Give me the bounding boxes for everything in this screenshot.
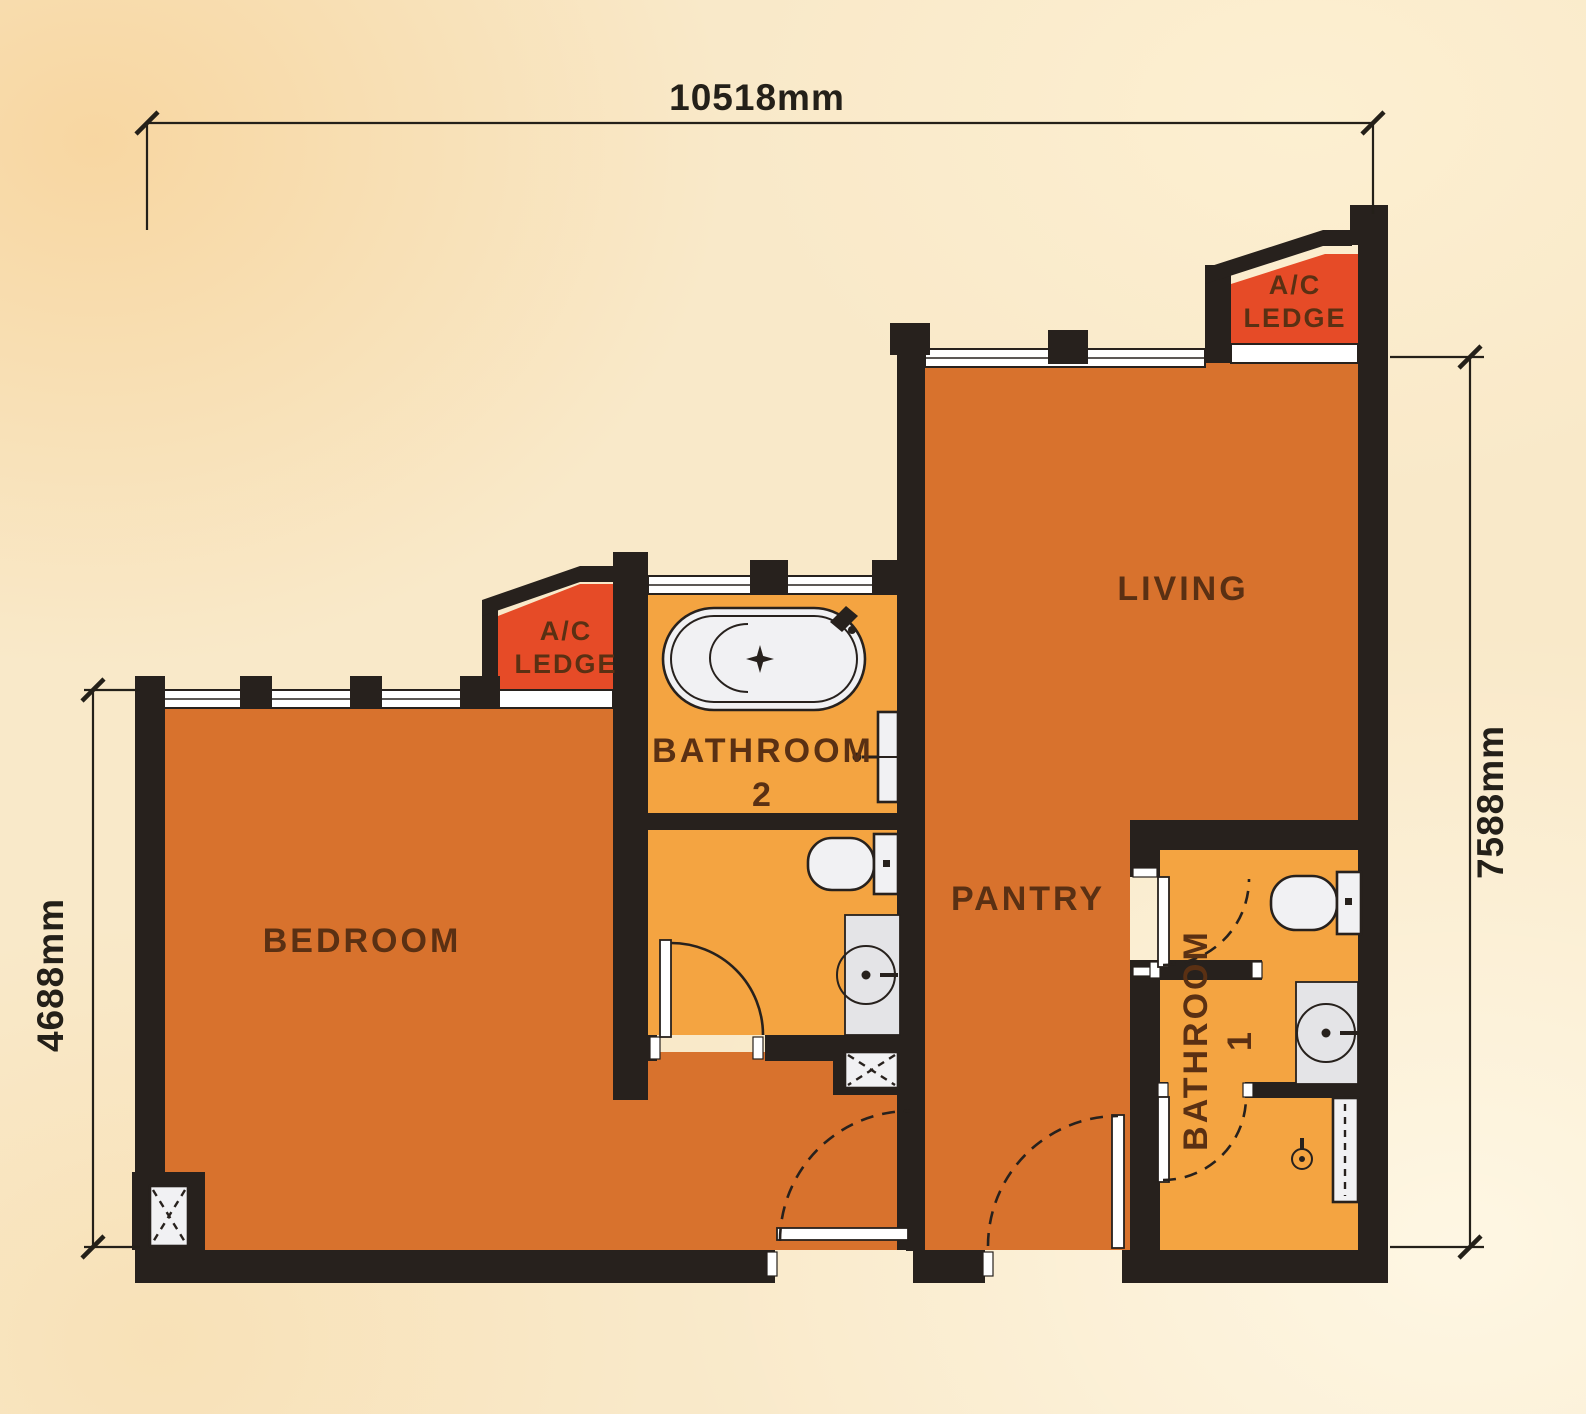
bathroom2-label: BATHROOM (652, 732, 874, 770)
wall-right-outer (1358, 212, 1388, 1283)
door-stop (650, 1037, 660, 1059)
living-label: LIVING (1117, 570, 1248, 608)
wall-bathroom1-left (1130, 967, 1160, 1250)
window-mullion (240, 676, 272, 708)
ac-ledge-left-label: A/C (540, 616, 593, 646)
sink-drain (1322, 1029, 1331, 1038)
bathtub-tap-icon (848, 626, 856, 634)
entry-door-leaf (1112, 1115, 1124, 1248)
door-leaf (660, 940, 671, 1037)
wall-bathroom2-partition (648, 813, 898, 830)
window-mullion (750, 560, 788, 595)
toilet-icon (808, 838, 874, 890)
wall-ac-ledge-left (482, 604, 498, 692)
bedroom-floor (165, 704, 613, 1250)
ac-ledge-left-window (498, 690, 613, 708)
dimension-top-label: 10518mm (669, 77, 845, 118)
door-stop (1158, 1083, 1168, 1097)
door-stop (767, 1252, 777, 1276)
door-stop (1133, 868, 1157, 877)
window-mullion (135, 676, 163, 708)
window-mullion (872, 560, 900, 595)
bathroom1-label: BATHROOM (1177, 929, 1215, 1151)
toilet-button (883, 860, 890, 867)
entry-door-leaf (777, 1228, 908, 1240)
bedroom-label: BEDROOM (263, 922, 462, 960)
wall-bathroom2-left (613, 552, 648, 1100)
door-stop (753, 1037, 763, 1059)
floor-plan-page: { "title": "Apartment Unit Floor Plan", … (0, 0, 1586, 1414)
door-stop (1243, 1083, 1253, 1097)
door-stop (1252, 962, 1262, 978)
ac-ledge-right-label: A/C (1269, 270, 1322, 300)
window-mullion (1048, 330, 1088, 364)
dimension-right-label: 7588mm (1470, 725, 1511, 879)
floor-plan-drawing: 10518mm 7588mm 4688mm BEDROOM LIVING PAN… (0, 0, 1586, 1414)
ac-ledge-right-window (1231, 344, 1358, 363)
door-leaf (1158, 1097, 1169, 1182)
toilet-button (1345, 898, 1352, 905)
ac-ledge-left-label: LEDGE (514, 649, 617, 679)
ac-ledge-right-label: LEDGE (1243, 303, 1346, 333)
bathroom1-number: 1 (1221, 1029, 1259, 1051)
wall-bottom-segment (913, 1250, 985, 1283)
wall-bottom-segment (135, 1250, 775, 1283)
dimension-left-label: 4688mm (30, 898, 71, 1052)
sink-drain (862, 971, 871, 980)
door-leaf (1158, 877, 1169, 967)
toilet-icon (1271, 876, 1337, 930)
wall-center-spine (897, 325, 925, 1250)
bathroom2-number: 2 (752, 776, 774, 814)
wall-bottom-segment (1122, 1250, 1388, 1283)
door-stop (983, 1252, 993, 1276)
pantry-label: PANTRY (951, 880, 1105, 918)
wall-bathroom1-top (1130, 820, 1388, 850)
shower-head-icon (1299, 1156, 1305, 1162)
window-mullion (890, 323, 930, 355)
window-mullion (350, 676, 382, 708)
